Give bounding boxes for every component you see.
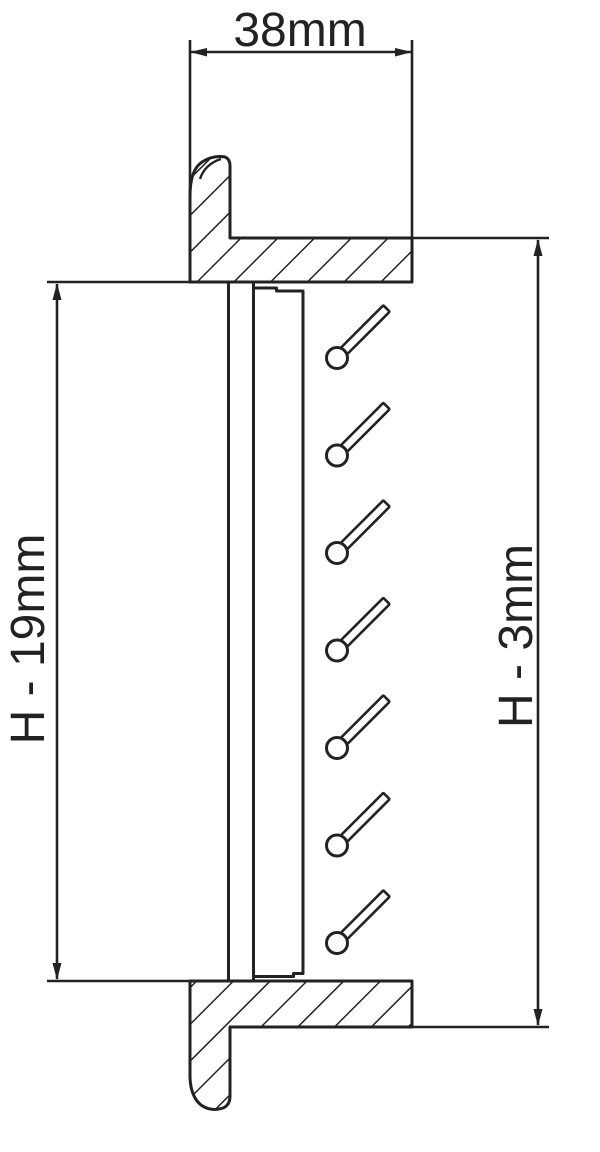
dimension-inner-height: H - 19mm <box>2 282 192 981</box>
louver-section-drawing: 38mm H - 19mm H - 3mm <box>0 0 600 1152</box>
width-arrow-right <box>395 48 412 57</box>
louver-slat-1 <box>327 305 390 368</box>
inner-height-arrow-bottom <box>53 963 62 980</box>
louver-slat-2 <box>327 403 390 466</box>
dim-inner-height-label: H - 19mm <box>2 534 55 745</box>
inner-height-arrow-top <box>53 283 62 300</box>
louver-slat-7 <box>327 890 390 953</box>
bottom-frame-flange <box>190 981 412 1109</box>
dimension-overall-height: H - 3mm <box>402 238 549 1027</box>
louver-section-svg: 38mm H - 19mm H - 3mm <box>0 0 600 1152</box>
top-frame-flange <box>190 157 412 282</box>
bottom-flange-profile <box>190 981 412 1109</box>
dim-width-label: 38mm <box>233 4 366 57</box>
dim-overall-height-label: H - 3mm <box>490 544 543 728</box>
louver-slats <box>327 305 390 953</box>
louver-channel <box>229 283 254 981</box>
overall-height-arrow-bottom <box>534 1009 543 1026</box>
louver-slat-5 <box>327 695 390 758</box>
top-flange-profile <box>190 157 412 282</box>
louver-slat-4 <box>327 598 390 661</box>
louver-slat-3 <box>327 500 390 563</box>
louver-panel-profile <box>254 288 303 977</box>
overall-height-arrow-top <box>534 239 543 256</box>
louver-slat-6 <box>327 793 390 856</box>
width-arrow-left <box>190 48 207 57</box>
